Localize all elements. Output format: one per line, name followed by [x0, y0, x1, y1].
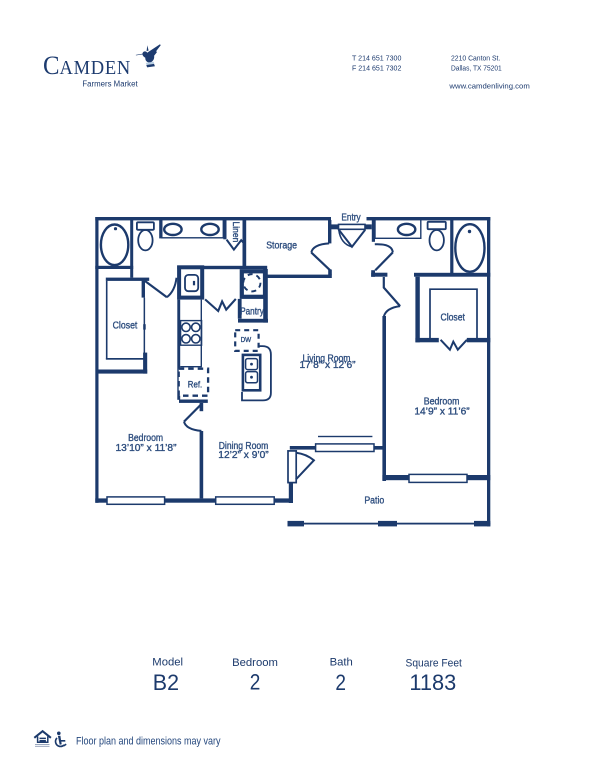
svg-text:Linen: Linen [231, 221, 241, 242]
svg-text:www.camdenliving.com: www.camdenliving.com [448, 82, 529, 91]
svg-text:CAMDEN: CAMDEN [43, 50, 131, 80]
svg-text:Dallas, TX 75201: Dallas, TX 75201 [451, 65, 502, 72]
svg-text:Storage: Storage [266, 240, 297, 251]
svg-text:14’9” x 11’6”: 14’9” x 11’6” [414, 407, 470, 418]
svg-text:B2: B2 [153, 670, 179, 695]
svg-text:T 214 651 7300: T 214 651 7300 [352, 55, 402, 62]
svg-text:Bedroom: Bedroom [232, 657, 278, 669]
svg-text:Floor plan and dimensions may: Floor plan and dimensions may vary [76, 735, 221, 747]
svg-text:12’2” x 9’0”: 12’2” x 9’0” [218, 450, 269, 461]
svg-text:Model: Model [152, 657, 183, 669]
svg-text:Square Feet: Square Feet [406, 657, 463, 669]
svg-text:17’8” x 12’6”: 17’8” x 12’6” [299, 360, 356, 371]
svg-text:2: 2 [335, 670, 346, 695]
svg-text:Patio: Patio [364, 496, 384, 507]
svg-text:2: 2 [250, 670, 261, 695]
svg-text:Closet: Closet [113, 321, 138, 332]
svg-text:Farmers Market: Farmers Market [82, 80, 138, 89]
svg-text:DW: DW [241, 337, 252, 344]
svg-text:Pantry: Pantry [240, 307, 264, 318]
svg-text:13’10” x 11’8”: 13’10” x 11’8” [116, 443, 178, 454]
svg-text:Ref.: Ref. [188, 380, 202, 391]
svg-text:1183: 1183 [409, 670, 456, 695]
svg-text:Entry: Entry [341, 212, 360, 223]
svg-text:2210 Canton St.: 2210 Canton St. [451, 55, 500, 62]
svg-text:Closet: Closet [441, 313, 466, 324]
svg-text:Bath: Bath [330, 657, 353, 669]
svg-text:F 214 651 7302: F 214 651 7302 [352, 65, 402, 72]
